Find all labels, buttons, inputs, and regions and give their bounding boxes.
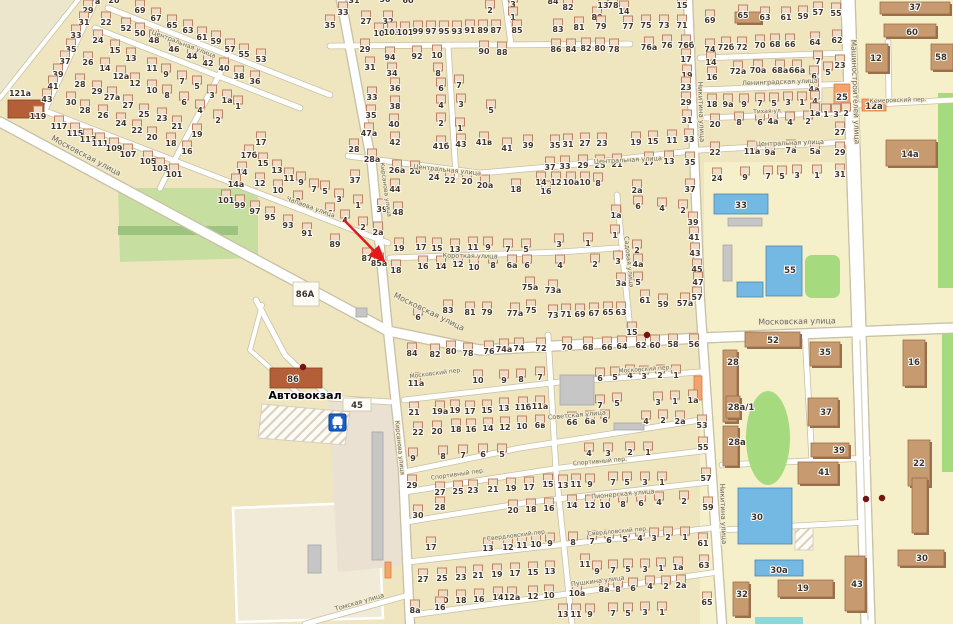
poi-dot: [879, 495, 885, 501]
house-number: 15: [257, 159, 269, 168]
house-number: 2: [592, 260, 598, 269]
house-number: 41: [688, 233, 700, 242]
house-number: 13: [544, 567, 555, 576]
house-number: 31: [834, 170, 846, 179]
house-number: 62: [831, 36, 842, 45]
house-number: 59: [702, 503, 714, 512]
house-number: 26: [97, 111, 109, 120]
house-number: 20: [709, 120, 721, 129]
house-number: 88: [496, 48, 508, 57]
house-number: 75: [640, 21, 652, 30]
house-number: 22: [444, 176, 455, 185]
house-number: 25: [452, 487, 464, 496]
house-number: 16: [181, 147, 193, 156]
house-number: 82: [429, 350, 440, 359]
house-number: 75: [525, 306, 537, 315]
house-number: 107: [120, 150, 137, 159]
house-number: 15: [109, 46, 121, 55]
house-number: 59: [797, 12, 809, 21]
house-number: 9: [410, 454, 416, 463]
house-number: 2: [360, 223, 366, 232]
house-number: 20: [461, 177, 473, 186]
house-number: 64: [616, 342, 628, 351]
house-number: 4: [438, 101, 444, 110]
house-number: 1: [814, 171, 820, 180]
house-number: 25: [436, 574, 448, 583]
house-number: 11: [146, 64, 158, 73]
house-number: 7: [311, 185, 317, 194]
building-number: 30а: [770, 566, 788, 576]
house-number: 15: [431, 244, 443, 253]
house-number: 1а: [673, 563, 684, 572]
house-number: 68: [769, 40, 781, 49]
house-number: 14: [99, 64, 111, 73]
building-number: 14а: [901, 150, 919, 160]
building-number: 37: [820, 408, 832, 418]
house-number: 23: [834, 61, 845, 70]
house-number: 12: [550, 178, 561, 187]
house-number: 13: [597, 1, 608, 10]
house-number: 15: [647, 137, 659, 146]
house-number: 4: [637, 534, 643, 543]
house-number: 24: [115, 119, 127, 128]
building-number: 33: [735, 201, 747, 211]
house-number: 25: [138, 110, 150, 119]
house-number: 73: [547, 311, 558, 320]
house-number: 28: [348, 145, 360, 154]
park-square: [805, 255, 840, 298]
house-number: 17: [680, 55, 691, 64]
house-number: 12: [584, 501, 595, 510]
house-number: 3: [642, 478, 648, 487]
house-number: 5: [625, 609, 631, 618]
house-number: 75а: [522, 283, 539, 292]
bus-stop-icon[interactable]: [329, 414, 346, 431]
house-number: 43: [689, 249, 700, 258]
house-number: 8: [620, 500, 626, 509]
house-number: 1: [658, 564, 664, 573]
house-number: 35: [684, 158, 696, 167]
building: [372, 432, 383, 560]
house-number: 10: [599, 501, 611, 510]
house-number: 37: [544, 163, 555, 172]
building-number: 16: [908, 358, 920, 368]
house-number: 12: [254, 179, 265, 188]
building: [723, 245, 732, 281]
house-number: 30: [379, 0, 391, 4]
house-number: 10: [516, 422, 528, 431]
house-number: 50: [134, 29, 146, 38]
house-number: 41: [501, 144, 513, 153]
house-number: 85: [511, 26, 523, 35]
house-number: 8: [164, 91, 170, 100]
house-number: 13: [498, 404, 509, 413]
house-number: 65: [602, 308, 614, 317]
house-number: 16: [706, 73, 718, 82]
house-number: 16: [473, 595, 485, 604]
house-number: 35: [324, 21, 336, 30]
building: [356, 308, 367, 317]
house-number: 4: [647, 582, 653, 591]
house-number: 5: [614, 399, 620, 408]
house-number: 7: [537, 373, 543, 382]
house-number: 72: [535, 344, 546, 353]
house-number: 1а: [810, 109, 821, 118]
house-number: 1: [457, 124, 463, 133]
house-number: 61: [697, 539, 709, 548]
house-number: 27: [434, 488, 445, 497]
house-number: 18: [390, 266, 402, 275]
house-number: 99: [412, 27, 424, 36]
house-number: 30: [412, 511, 424, 520]
house-number: 6а: [585, 417, 596, 426]
house-number: 15: [481, 406, 493, 415]
house-number: 9: [594, 567, 600, 576]
house-number: 7: [610, 478, 616, 487]
house-number: 27: [579, 139, 590, 148]
house-number: 8а: [410, 606, 421, 615]
house-number: 15: [527, 568, 539, 577]
house-number: 12: [452, 260, 463, 269]
house-number: 21: [472, 571, 484, 580]
house-number: 7: [815, 57, 821, 66]
house-number: 72: [736, 43, 747, 52]
map-viewport[interactable]: 3760125814а52352828а/128а371639412219324…: [0, 0, 953, 624]
house-number: 117: [51, 122, 68, 131]
house-number: 24: [711, 174, 723, 183]
house-number: 31: [348, 0, 360, 5]
house-number: 10: [472, 376, 484, 385]
house-number: 68а: [772, 66, 789, 75]
house-number: 19: [393, 244, 405, 253]
house-number: 3: [641, 372, 647, 381]
house-number: 38: [389, 102, 401, 111]
building-number: 86А: [296, 290, 315, 300]
house-number: 8а: [599, 585, 610, 594]
house-number: 9: [742, 173, 748, 182]
house-number: 15: [542, 480, 554, 489]
house-number: 44: [389, 185, 401, 194]
house-number: 6: [480, 450, 486, 459]
building: [738, 488, 792, 544]
house-number: 79: [481, 308, 493, 317]
house-number: 19: [449, 406, 461, 415]
house-number: 99: [234, 201, 246, 210]
house-number: 3: [209, 91, 215, 100]
house-number: 23: [680, 83, 691, 92]
house-number: 35: [365, 111, 377, 120]
house-number: 8: [490, 261, 496, 270]
house-number: 57: [224, 45, 235, 54]
house-number: 57: [700, 474, 711, 483]
house-number: 76: [661, 41, 673, 50]
house-number: 2: [438, 119, 444, 128]
house-number: 10: [272, 186, 284, 195]
house-number: 101: [218, 196, 235, 205]
house-number: 72б: [718, 42, 735, 52]
house-number: 28: [74, 80, 86, 89]
house-number: 21: [171, 122, 183, 131]
house-number: 84: [547, 0, 559, 6]
house-number: 12: [499, 423, 510, 432]
house-number: 61: [639, 296, 651, 305]
house-number: 7: [757, 99, 763, 108]
building-number: 86: [287, 375, 299, 385]
poi-dot: [863, 496, 869, 502]
house-number: 11: [283, 174, 295, 183]
house-number: 1а: [688, 396, 699, 405]
house-number: 27: [360, 17, 371, 26]
building-number: 30: [916, 554, 928, 564]
house-number: 3: [615, 257, 621, 266]
building-number: 55: [784, 266, 796, 276]
house-number: 17: [415, 243, 426, 252]
building: [560, 375, 594, 405]
house-number: 11б: [515, 402, 532, 412]
house-number: 6а: [507, 261, 518, 270]
house-number: 22: [709, 148, 720, 157]
house-number: 63: [615, 308, 626, 317]
house-number: 3: [651, 534, 657, 543]
house-number: 9а: [723, 100, 734, 109]
house-number: 33: [337, 8, 348, 17]
house-number: 11а: [532, 402, 549, 411]
house-number: 71: [676, 21, 688, 30]
building: [728, 218, 762, 226]
building-number: 22: [913, 459, 925, 469]
house-number: 2: [660, 416, 666, 425]
house-number: 2: [805, 117, 811, 126]
house-number: 31: [364, 63, 376, 72]
house-number: 5: [624, 478, 630, 487]
house-number: 11: [516, 541, 528, 550]
house-number: 3: [655, 398, 661, 407]
house-number: 8: [595, 179, 601, 188]
house-number: 84: [406, 349, 418, 358]
house-number: 2: [680, 206, 686, 215]
building-number: 25: [836, 93, 848, 103]
house-number: 9: [298, 178, 304, 187]
house-number: 36: [389, 84, 401, 93]
house-number: 14: [492, 593, 504, 602]
house-number: 10а: [563, 178, 580, 187]
house-number: 17: [509, 569, 520, 578]
house-number: 9: [741, 100, 747, 109]
house-number: 81: [464, 308, 476, 317]
house-number: 19: [505, 484, 517, 493]
house-number: 61: [196, 33, 208, 42]
house-number: 20: [507, 506, 519, 515]
house-number: 9: [587, 610, 593, 619]
house-number: 119: [30, 112, 47, 121]
house-number: 6: [638, 499, 644, 508]
house-number: 76: [483, 347, 495, 356]
house-number: 5а: [810, 147, 821, 156]
house-number: 3: [785, 98, 791, 107]
house-number: 6: [597, 374, 603, 383]
house-number: 14а: [228, 180, 245, 189]
house-number: 7: [456, 81, 462, 90]
house-number: 4: [643, 417, 649, 426]
house-number: 33: [366, 93, 377, 102]
house-number: 18: [450, 425, 462, 434]
house-number: 8: [736, 118, 742, 127]
house-number: 40: [388, 120, 400, 129]
house-number: 65: [737, 11, 749, 20]
house-number: 3: [794, 171, 800, 180]
house-number: 23: [455, 573, 466, 582]
house-number: 10: [530, 540, 542, 549]
city-map-canvas[interactable]: 3760125814а52352828а/128а371639412219324…: [0, 0, 953, 624]
house-number: 42: [202, 59, 213, 68]
house-number: 13: [663, 157, 674, 166]
house-number: 1: [672, 397, 678, 406]
house-number: 17: [425, 543, 436, 552]
house-number: 61: [780, 13, 792, 22]
house-number: 12а: [113, 72, 130, 81]
house-number: 9: [587, 480, 593, 489]
house-number: 26а: [389, 166, 406, 175]
house-number: 37: [349, 176, 360, 185]
house-number: 91: [464, 26, 476, 35]
building: [308, 545, 321, 573]
house-number: 29: [406, 481, 418, 490]
house-number: 16: [417, 262, 429, 271]
house-number: 20: [108, 0, 120, 5]
house-number: 5: [771, 99, 777, 108]
house-number: 3: [833, 110, 839, 119]
house-number: 94: [384, 53, 396, 62]
house-number: 7: [610, 609, 616, 618]
house-number: 28: [434, 503, 446, 512]
house-number: 6: [438, 84, 444, 93]
house-number: 20: [431, 427, 443, 436]
building: [614, 423, 644, 430]
house-number: 12: [527, 592, 538, 601]
house-number: 87: [490, 26, 501, 35]
house-number: 48: [392, 208, 404, 217]
house-number: 46: [168, 45, 180, 54]
house-number: 63: [698, 561, 709, 570]
house-number: 5: [499, 450, 505, 459]
house-number: 71: [560, 310, 572, 319]
house-number: 33: [559, 162, 570, 171]
house-number: 10: [468, 263, 480, 272]
house-number: 53: [696, 421, 707, 430]
house-number: 13: [271, 166, 282, 175]
house-number: 9: [485, 243, 491, 252]
house-number: 58: [667, 340, 679, 349]
house-number: 4: [787, 118, 793, 127]
house-number: 1: [355, 201, 361, 210]
house-number: 6: [602, 416, 608, 425]
house-number: 82: [562, 3, 573, 12]
house-number: 77: [622, 22, 633, 31]
house-number: 59: [210, 37, 222, 46]
house-number: 17б: [241, 150, 258, 160]
house-number: 95: [264, 213, 276, 222]
house-number: 29: [91, 87, 103, 96]
house-number: 11а: [408, 379, 425, 388]
house-number: 64: [809, 38, 821, 47]
house-number: 97: [249, 207, 260, 216]
house-number: 90: [478, 47, 490, 56]
house-number: 38: [233, 72, 245, 81]
house-number: 22: [100, 18, 111, 27]
building-number: 52: [767, 336, 779, 346]
house-number: 6: [757, 118, 763, 127]
house-number: 9: [501, 376, 507, 385]
house-number: 3: [336, 195, 342, 204]
house-number: 73а: [545, 286, 562, 295]
house-number: 5: [825, 68, 831, 77]
house-number: 66: [601, 343, 613, 352]
house-number: 2а: [373, 228, 384, 237]
house-number: 2: [627, 448, 633, 457]
house-number: 47а: [361, 129, 378, 138]
house-number: 56: [688, 340, 700, 349]
house-number: 8: [518, 375, 524, 384]
house-number: 78: [608, 45, 620, 54]
house-number: 21: [487, 485, 499, 494]
building-number: 28а: [728, 438, 746, 448]
house-number: 6: [630, 584, 636, 593]
house-number: 1: [659, 478, 665, 487]
house-number: 68: [582, 343, 594, 352]
house-number: 4а: [768, 117, 779, 126]
house-number: 5: [194, 82, 200, 91]
house-number: 22: [412, 428, 423, 437]
house-number: 101: [166, 170, 183, 179]
house-number: 59: [657, 300, 669, 309]
house-number: 1: [682, 533, 688, 542]
house-number: 1а: [222, 96, 233, 105]
building: [737, 282, 763, 297]
street-name-label: Московская улица: [758, 316, 836, 326]
house-number: 11: [579, 560, 591, 569]
tree-row: [118, 226, 238, 235]
house-number: 93: [282, 221, 293, 230]
house-number: 19: [630, 138, 642, 147]
house-number: 39: [522, 141, 534, 150]
house-number: 57: [691, 293, 702, 302]
house-number: 7а: [786, 146, 797, 155]
building-number: 28а/1: [728, 403, 755, 413]
house-number: 1: [235, 102, 241, 111]
house-number: 16: [434, 603, 446, 612]
house-number: 17: [255, 138, 266, 147]
house-number: 69: [574, 310, 586, 319]
house-number: 67: [588, 309, 599, 318]
building-number: 39: [833, 446, 845, 456]
house-number: 6: [415, 313, 421, 322]
house-number: 66а: [789, 66, 806, 75]
house-number: 18: [510, 185, 522, 194]
building-number: 30: [751, 513, 763, 523]
house-number: 70: [754, 41, 766, 50]
house-number: 11: [570, 610, 582, 619]
house-number: 80: [445, 347, 457, 356]
house-number: 14: [705, 58, 717, 67]
house-number: 63: [759, 13, 770, 22]
house-number: 52: [120, 24, 131, 33]
house-number: 92: [411, 52, 422, 61]
house-number: 2: [681, 497, 687, 506]
house-number: 13: [125, 54, 136, 63]
house-number: 31: [562, 140, 574, 149]
house-number: 7: [460, 451, 466, 460]
house-number: 66: [784, 40, 796, 49]
